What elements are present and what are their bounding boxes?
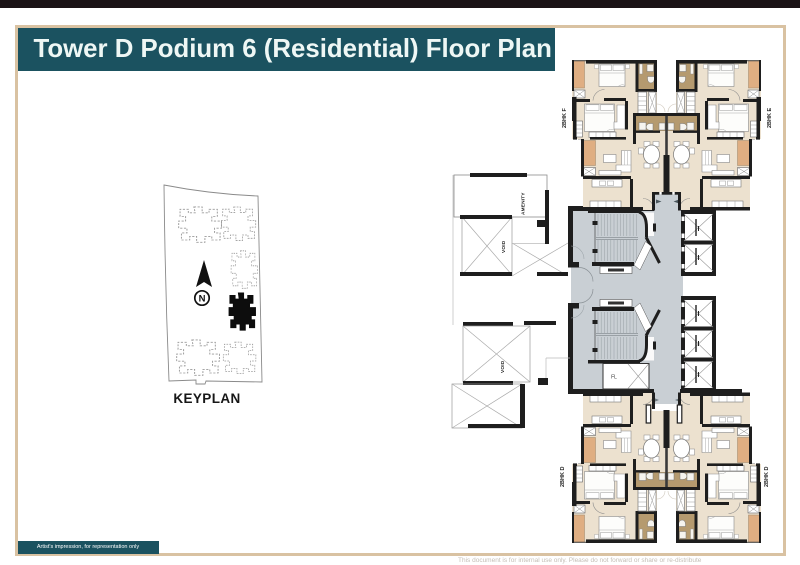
svg-text:FL: FL [611,375,617,381]
svg-text:AMENITY: AMENITY [521,192,527,215]
svg-text:VOID: VOID [501,240,507,253]
svg-text:2BHK E: 2BHK E [767,107,773,128]
svg-text:2BHK D: 2BHK D [764,466,770,487]
svg-text:2BHK F: 2BHK F [562,107,568,128]
svg-text:KEYPLAN: KEYPLAN [173,391,240,406]
svg-text:2BHK D: 2BHK D [560,466,566,487]
svg-text:N: N [199,294,206,305]
svg-text:VOID: VOID [500,360,506,373]
